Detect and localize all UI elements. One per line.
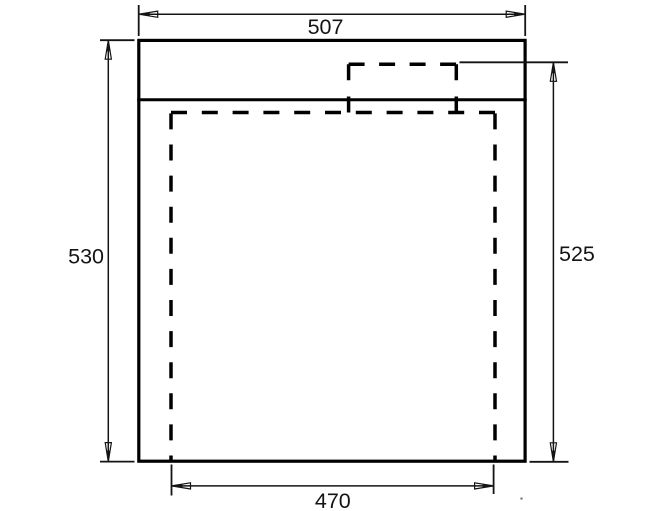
svg-text:507: 507 <box>308 15 344 39</box>
svg-text:530: 530 <box>68 244 104 268</box>
svg-text:470: 470 <box>315 489 351 511</box>
svg-text:525: 525 <box>559 242 595 266</box>
